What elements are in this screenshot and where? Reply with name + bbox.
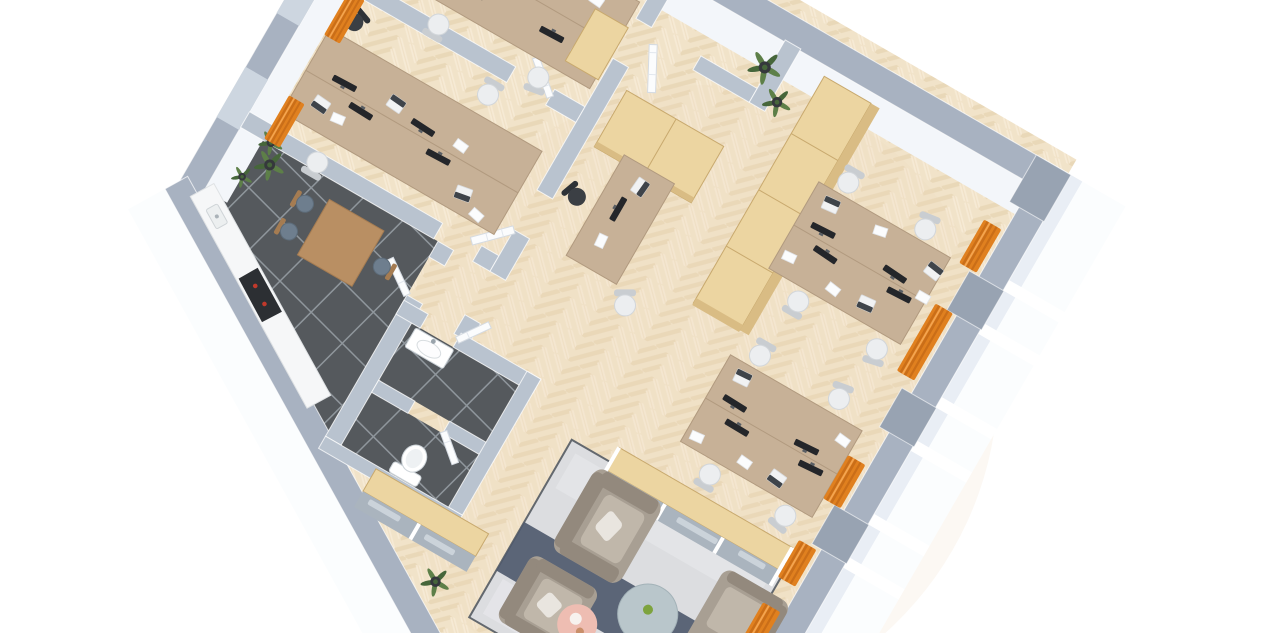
floor-plan-render <box>0 0 1280 633</box>
office-chair <box>614 289 636 316</box>
vestibule-door <box>648 44 658 92</box>
floor-plan-svg <box>0 0 1280 633</box>
rotated-plan <box>0 0 1153 633</box>
